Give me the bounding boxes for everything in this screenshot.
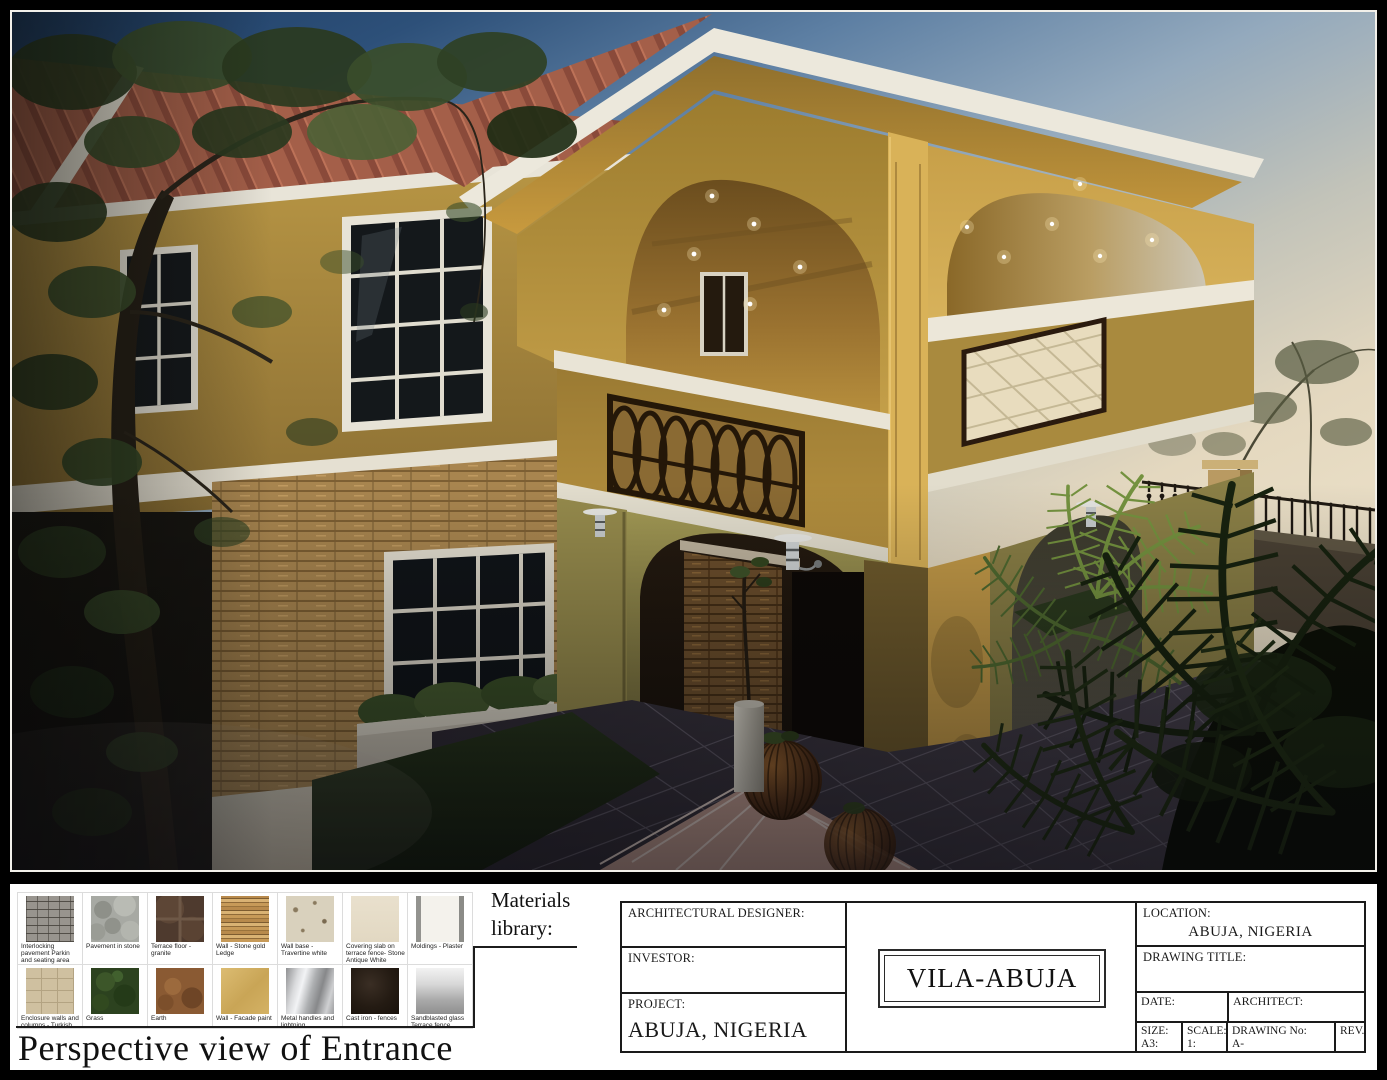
field-label: INVESTOR: <box>628 951 839 966</box>
material-swatch-earth <box>156 968 204 1014</box>
material-item: Pavement in stone <box>83 893 148 965</box>
sheet-caption: Perspective view of Entrance <box>18 1027 453 1069</box>
vignette <box>12 12 1375 870</box>
field-rev: REV. <box>1336 1023 1364 1053</box>
material-item: Covering slab on terrace fence- Stone An… <box>343 893 408 965</box>
field-drawing-title: DRAWING TITLE: <box>1137 947 1364 993</box>
material-item: Wall - Stone gold Ledge <box>213 893 278 965</box>
title-block-center: VILA-ABUJA <box>847 903 1137 1053</box>
size-value: A3: <box>1141 1038 1177 1051</box>
date-architect-row: DATE: ARCHITECT: <box>1137 993 1364 1023</box>
material-swatch-metal-handles <box>286 968 334 1014</box>
field-scale: SCALE: 1: <box>1183 1023 1228 1053</box>
material-label: Grass <box>83 1015 147 1022</box>
divider-line <box>473 946 577 948</box>
field-date: DATE: <box>1137 993 1229 1023</box>
field-label: PROJECT: <box>628 997 839 1012</box>
material-item: Metal handles and lightning <box>278 965 343 1029</box>
project-value: ABUJA, NIGERIA <box>628 1017 839 1043</box>
size-scale-row: SIZE: A3: SCALE: 1: DRAWING No: A- REV. <box>1137 1023 1364 1053</box>
field-size: SIZE: A3: <box>1137 1023 1183 1053</box>
material-swatch-enclosure-walls <box>26 968 74 1014</box>
material-label: Wall - Facade paint <box>213 1015 277 1022</box>
material-item: Terrace floor - granite <box>148 893 213 965</box>
material-item: Earth <box>148 965 213 1029</box>
field-architect: ARCHITECT: <box>1229 993 1364 1023</box>
materials-grid: Interlocking pavement Parkin and seating… <box>17 892 473 1029</box>
field-architectural-designer: ARCHITECTURAL DESIGNER: <box>622 903 845 948</box>
scale-value: 1: <box>1187 1038 1222 1051</box>
field-investor: INVESTOR: <box>622 948 845 994</box>
material-label: Pavement in stone <box>83 943 147 950</box>
title-block-right: LOCATION: ABUJA, NIGERIA DRAWING TITLE: … <box>1135 903 1364 1053</box>
field-label: REV. <box>1340 1025 1360 1038</box>
material-item: Wall - Facade paint <box>213 965 278 1029</box>
title-block: ARCHITECTURAL DESIGNER: INVESTOR: PROJEC… <box>620 901 1366 1053</box>
villa-title: VILA-ABUJA <box>884 955 1100 1002</box>
drawing-no-value: A- <box>1232 1038 1330 1051</box>
material-label: Wall base - Travertine white <box>278 943 342 957</box>
material-swatch-wall-base-travertine <box>286 896 334 942</box>
material-swatch-grass <box>91 968 139 1014</box>
material-label: Cast iron - fences <box>343 1015 407 1022</box>
material-swatch-terrace-floor-granite <box>156 896 204 942</box>
material-label: Earth <box>148 1015 212 1022</box>
material-swatch-pavement-in-stone <box>91 896 139 942</box>
material-label: Covering slab on terrace fence- Stone An… <box>343 943 407 964</box>
materials-library-title: Materials library: <box>491 886 591 942</box>
material-label: Wall - Stone gold Ledge <box>213 943 277 957</box>
material-item: Grass <box>83 965 148 1029</box>
material-swatch-moldings-plaster <box>416 896 464 942</box>
render-frame <box>10 10 1377 872</box>
field-drawing-no: DRAWING No: A- <box>1228 1023 1336 1053</box>
field-label: LOCATION: <box>1143 906 1358 921</box>
villa-title-box: VILA-ABUJA <box>878 949 1106 1008</box>
material-swatch-interlocking-pavement <box>26 896 74 942</box>
field-project: PROJECT: ABUJA, NIGERIA <box>622 994 845 1053</box>
field-label: SIZE: <box>1141 1025 1177 1038</box>
material-swatch-wall-facade-paint <box>221 968 269 1014</box>
field-label: DRAWING TITLE: <box>1143 950 1358 965</box>
material-item: Enclosure walls and columns - Turkish st… <box>18 965 83 1029</box>
material-item: Cast iron - fences <box>343 965 408 1029</box>
title-block-left: ARCHITECTURAL DESIGNER: INVESTOR: PROJEC… <box>622 903 847 1053</box>
material-item: Interlocking pavement Parkin and seating… <box>18 893 83 965</box>
field-label: SCALE: <box>1187 1025 1222 1038</box>
material-swatch-cast-iron-fences <box>351 968 399 1014</box>
field-label: DRAWING No: <box>1232 1025 1330 1038</box>
field-location: LOCATION: ABUJA, NIGERIA <box>1137 903 1364 947</box>
sheet-bottom-panel: Interlocking pavement Parkin and seating… <box>10 884 1377 1070</box>
material-item: Moldings - Plaster <box>408 893 473 965</box>
location-value: ABUJA, NIGERIA <box>1143 924 1358 941</box>
field-label: ARCHITECTURAL DESIGNER: <box>628 906 839 921</box>
material-swatch-wall-stone-gold-ledge <box>221 896 269 942</box>
divider-line <box>473 946 475 1027</box>
material-label: Interlocking pavement Parkin and seating… <box>18 943 82 964</box>
architectural-sheet: Interlocking pavement Parkin and seating… <box>0 0 1387 1080</box>
material-swatch-sandblasted-glass <box>416 968 464 1014</box>
material-item: Sandblasted glass Terrace fence <box>408 965 473 1029</box>
material-label: Moldings - Plaster <box>408 943 472 950</box>
render-image <box>12 12 1375 870</box>
material-label: Terrace floor - granite <box>148 943 212 957</box>
material-swatch-covering-slab <box>351 896 399 942</box>
material-item: Wall base - Travertine white <box>278 893 343 965</box>
